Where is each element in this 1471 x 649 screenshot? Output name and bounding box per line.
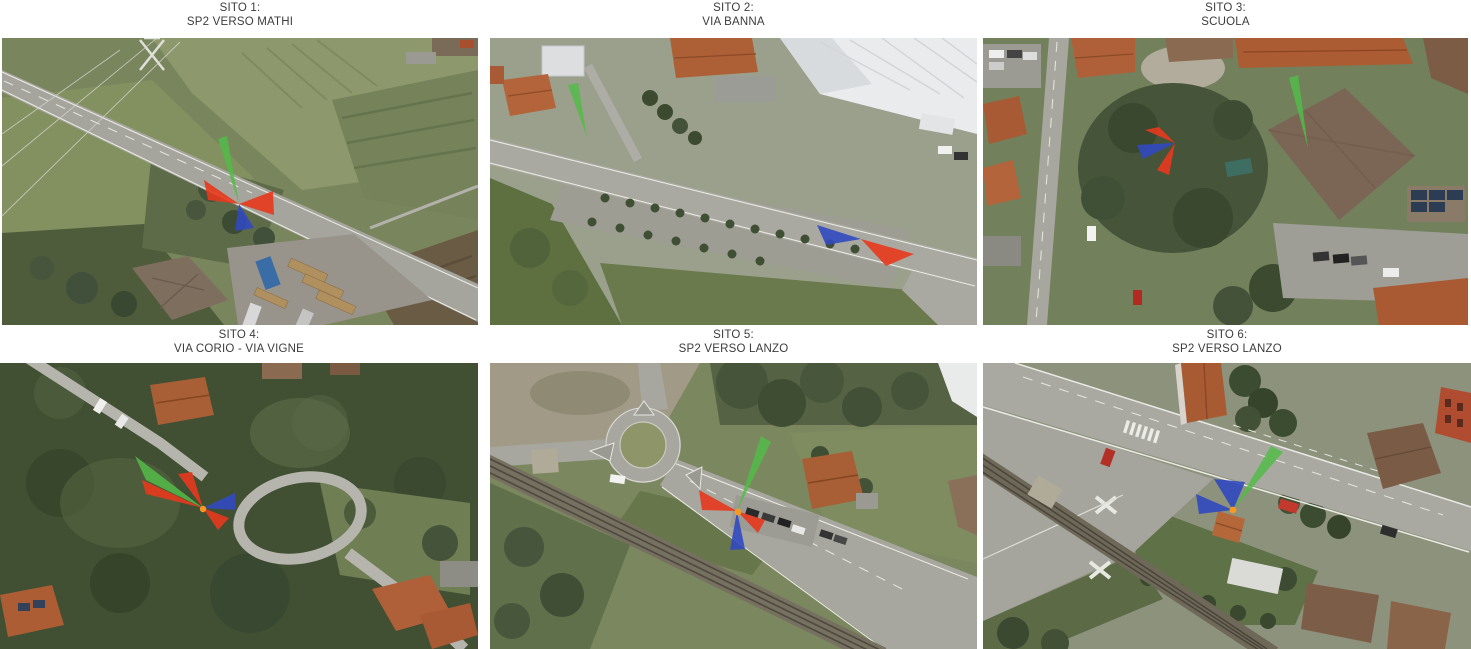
site-title-3: SITO 3: SCUOLA	[983, 2, 1468, 29]
aerial-photo-site-4	[0, 363, 478, 649]
site-title-1: SITO 1: SP2 VERSO MATHI	[2, 2, 478, 29]
site-number: SITO 2:	[490, 2, 977, 16]
aerial-photo-site-5	[490, 363, 977, 649]
aerial-map-svg	[983, 38, 1468, 325]
aerial-map-svg	[2, 38, 478, 325]
aerial-map-svg	[490, 38, 977, 325]
site-location: VIA BANNA	[490, 16, 977, 30]
site-number: SITO 5:	[490, 329, 977, 343]
site-location: SP2 VERSO LANZO	[490, 343, 977, 357]
site-location: SP2 VERSO MATHI	[2, 16, 478, 30]
site-title-4: SITO 4: VIA CORIO - VIA VIGNE	[0, 329, 478, 356]
aerial-map-svg	[983, 363, 1471, 649]
aerial-photo-site-6	[983, 363, 1471, 649]
aerial-map-svg	[0, 363, 478, 649]
site-number: SITO 6:	[983, 329, 1471, 343]
site-title-6: SITO 6: SP2 VERSO LANZO	[983, 329, 1471, 356]
site-number: SITO 3:	[983, 2, 1468, 16]
site-location: SP2 VERSO LANZO	[983, 343, 1471, 357]
orange-device-dot	[1230, 507, 1237, 514]
orange-device-dot	[200, 506, 206, 512]
aerial-map-svg	[490, 363, 977, 649]
site-location: SCUOLA	[983, 16, 1468, 30]
aerial-photo-site-2	[490, 38, 977, 325]
aerial-photo-site-3	[983, 38, 1468, 325]
orange-device-dot	[735, 509, 742, 516]
aerial-photo-site-1	[2, 38, 478, 325]
site-location: VIA CORIO - VIA VIGNE	[0, 343, 478, 357]
site-number: SITO 1:	[2, 2, 478, 16]
site-title-2: SITO 2: VIA BANNA	[490, 2, 977, 29]
report-page: { "page": { "background": "#ffffff", "te…	[0, 0, 1471, 649]
site-title-5: SITO 5: SP2 VERSO LANZO	[490, 329, 977, 356]
site-number: SITO 4:	[0, 329, 478, 343]
